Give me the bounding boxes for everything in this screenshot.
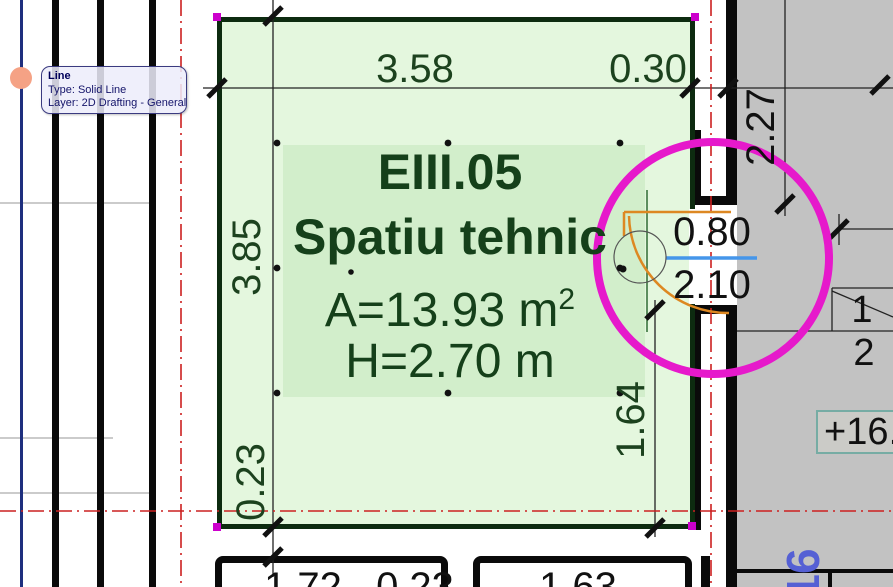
- dim-top-wall: 0.30: [598, 48, 698, 90]
- zone-area-sup: 2: [558, 283, 575, 316]
- tooltip-layer: Layer: 2D Drafting - General: [48, 97, 180, 111]
- dim-left-wall: 0.23: [203, 462, 299, 502]
- zone-name: Spatiu tehnic: [240, 210, 660, 264]
- elevation-label: +16.: [816, 410, 893, 454]
- zone-area-value: A=13.93 m: [325, 284, 558, 337]
- dim-door-height: 2.10: [662, 264, 762, 306]
- dim-bottom-right-width: 1.63: [533, 566, 623, 587]
- zone-area: A=13.93 m2: [240, 274, 660, 337]
- grid-line-label: 16: [771, 547, 835, 587]
- stair-tread-1: 1: [845, 289, 879, 331]
- drawing-canvas[interactable]: EIII.05 Spatiu tehnic A=13.93 m2 H=2.70 …: [0, 0, 893, 587]
- info-tooltip: Line Type: Solid Line Layer: 2D Drafting…: [41, 66, 187, 114]
- dim-bottom-left-width: 1.72: [258, 566, 348, 587]
- dim-left-height: 3.85: [192, 235, 302, 279]
- dim-top-width: 3.58: [365, 48, 465, 90]
- dim-right-height: 1.64: [581, 400, 681, 440]
- snap-indicator-dot: [10, 67, 32, 89]
- dim-bottom-left-wall: 0.23: [370, 566, 460, 587]
- tooltip-title: Line: [48, 70, 180, 84]
- dim-door-width: 0.80: [662, 211, 762, 253]
- dim-right-offset: 2.27: [706, 105, 816, 149]
- zone-code: EIII.05: [240, 145, 660, 199]
- tooltip-type: Type: Solid Line: [48, 84, 180, 98]
- zone-height: H=2.70 m: [240, 336, 660, 388]
- stair-tread-2: 2: [847, 332, 881, 374]
